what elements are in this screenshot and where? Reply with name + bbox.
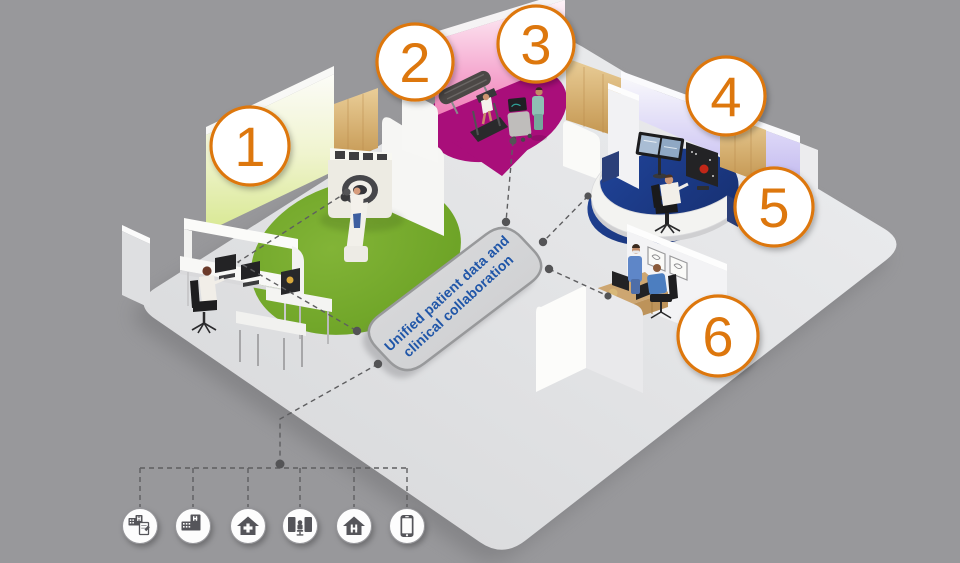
- callout-4[interactable]: 4: [687, 57, 765, 135]
- reading-room-workstation-icon[interactable]: [283, 509, 318, 544]
- callout-3[interactable]: 3: [498, 6, 574, 82]
- health-center-icon[interactable]: [231, 509, 266, 544]
- callout-2[interactable]: 2: [377, 24, 453, 100]
- callout-5[interactable]: 5: [735, 168, 813, 246]
- hospital-at-home-icon[interactable]: [337, 509, 372, 544]
- scene-illustration: Unified patient data and clinical collab…: [0, 0, 960, 563]
- isometric-clinic-diagram: Unified patient data and clinical collab…: [0, 0, 960, 563]
- callout-4-number: 4: [710, 65, 741, 128]
- callout-6[interactable]: 6: [678, 296, 758, 376]
- callout-5-number: 5: [758, 176, 789, 239]
- callout-1[interactable]: 1: [211, 107, 289, 185]
- mobile-phone-icon[interactable]: [390, 509, 425, 544]
- hospital-report-icon[interactable]: [123, 509, 158, 544]
- callout-3-number: 3: [520, 13, 551, 76]
- callout-2-number: 2: [399, 31, 430, 94]
- callout-6-number: 6: [702, 305, 733, 368]
- hospital-building-icon[interactable]: [176, 509, 211, 544]
- west-wall: [122, 225, 150, 308]
- callout-1-number: 1: [234, 115, 265, 178]
